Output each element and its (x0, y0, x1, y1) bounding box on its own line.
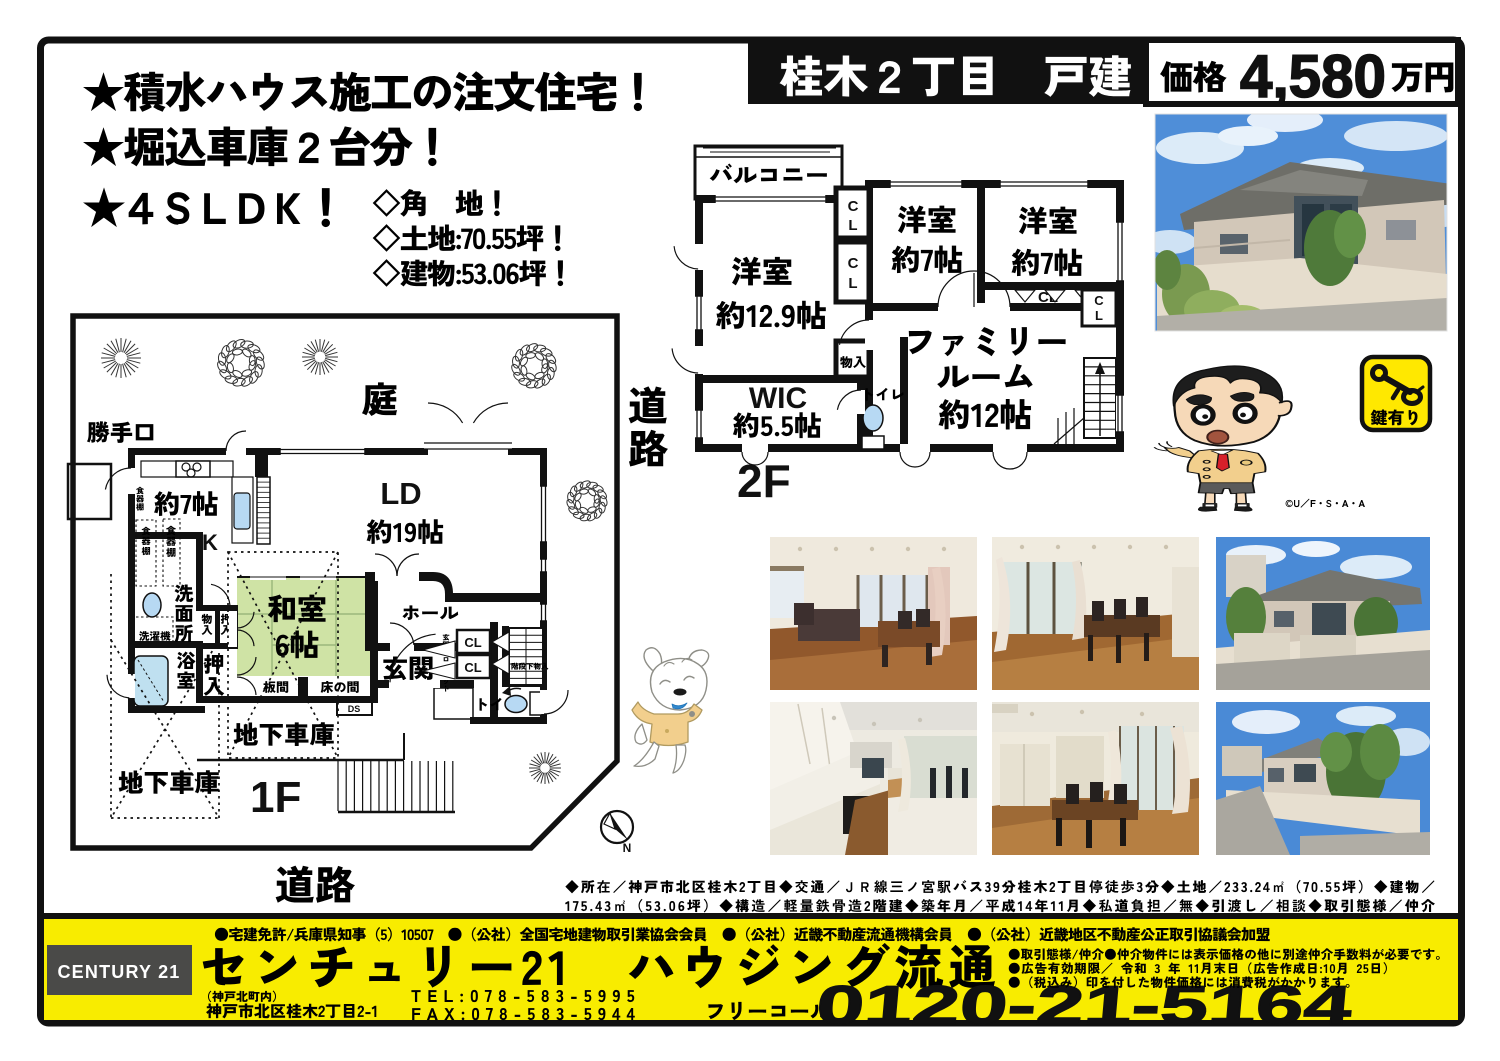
svg-text:4,580: 4,580 (1240, 43, 1386, 110)
svg-text:C: C (848, 198, 859, 215)
svg-text:L: L (1095, 308, 1103, 323)
svg-text:DS: DS (348, 704, 361, 714)
svg-text:2F: 2F (737, 455, 791, 507)
svg-text:WIC: WIC (749, 382, 807, 415)
svg-text:L: L (848, 217, 857, 234)
svg-text:K: K (202, 530, 218, 555)
svg-text:L: L (848, 275, 857, 292)
svg-text:N: N (623, 841, 632, 855)
svg-text:1F: 1F (250, 773, 301, 822)
svg-text:C: C (1094, 293, 1104, 308)
svg-text:C: C (848, 255, 859, 272)
svg-text:LD: LD (380, 476, 421, 511)
svg-text:CL: CL (464, 660, 481, 675)
svg-text:CENTURY 21: CENTURY 21 (57, 962, 180, 982)
svg-text:CL: CL (464, 635, 481, 650)
